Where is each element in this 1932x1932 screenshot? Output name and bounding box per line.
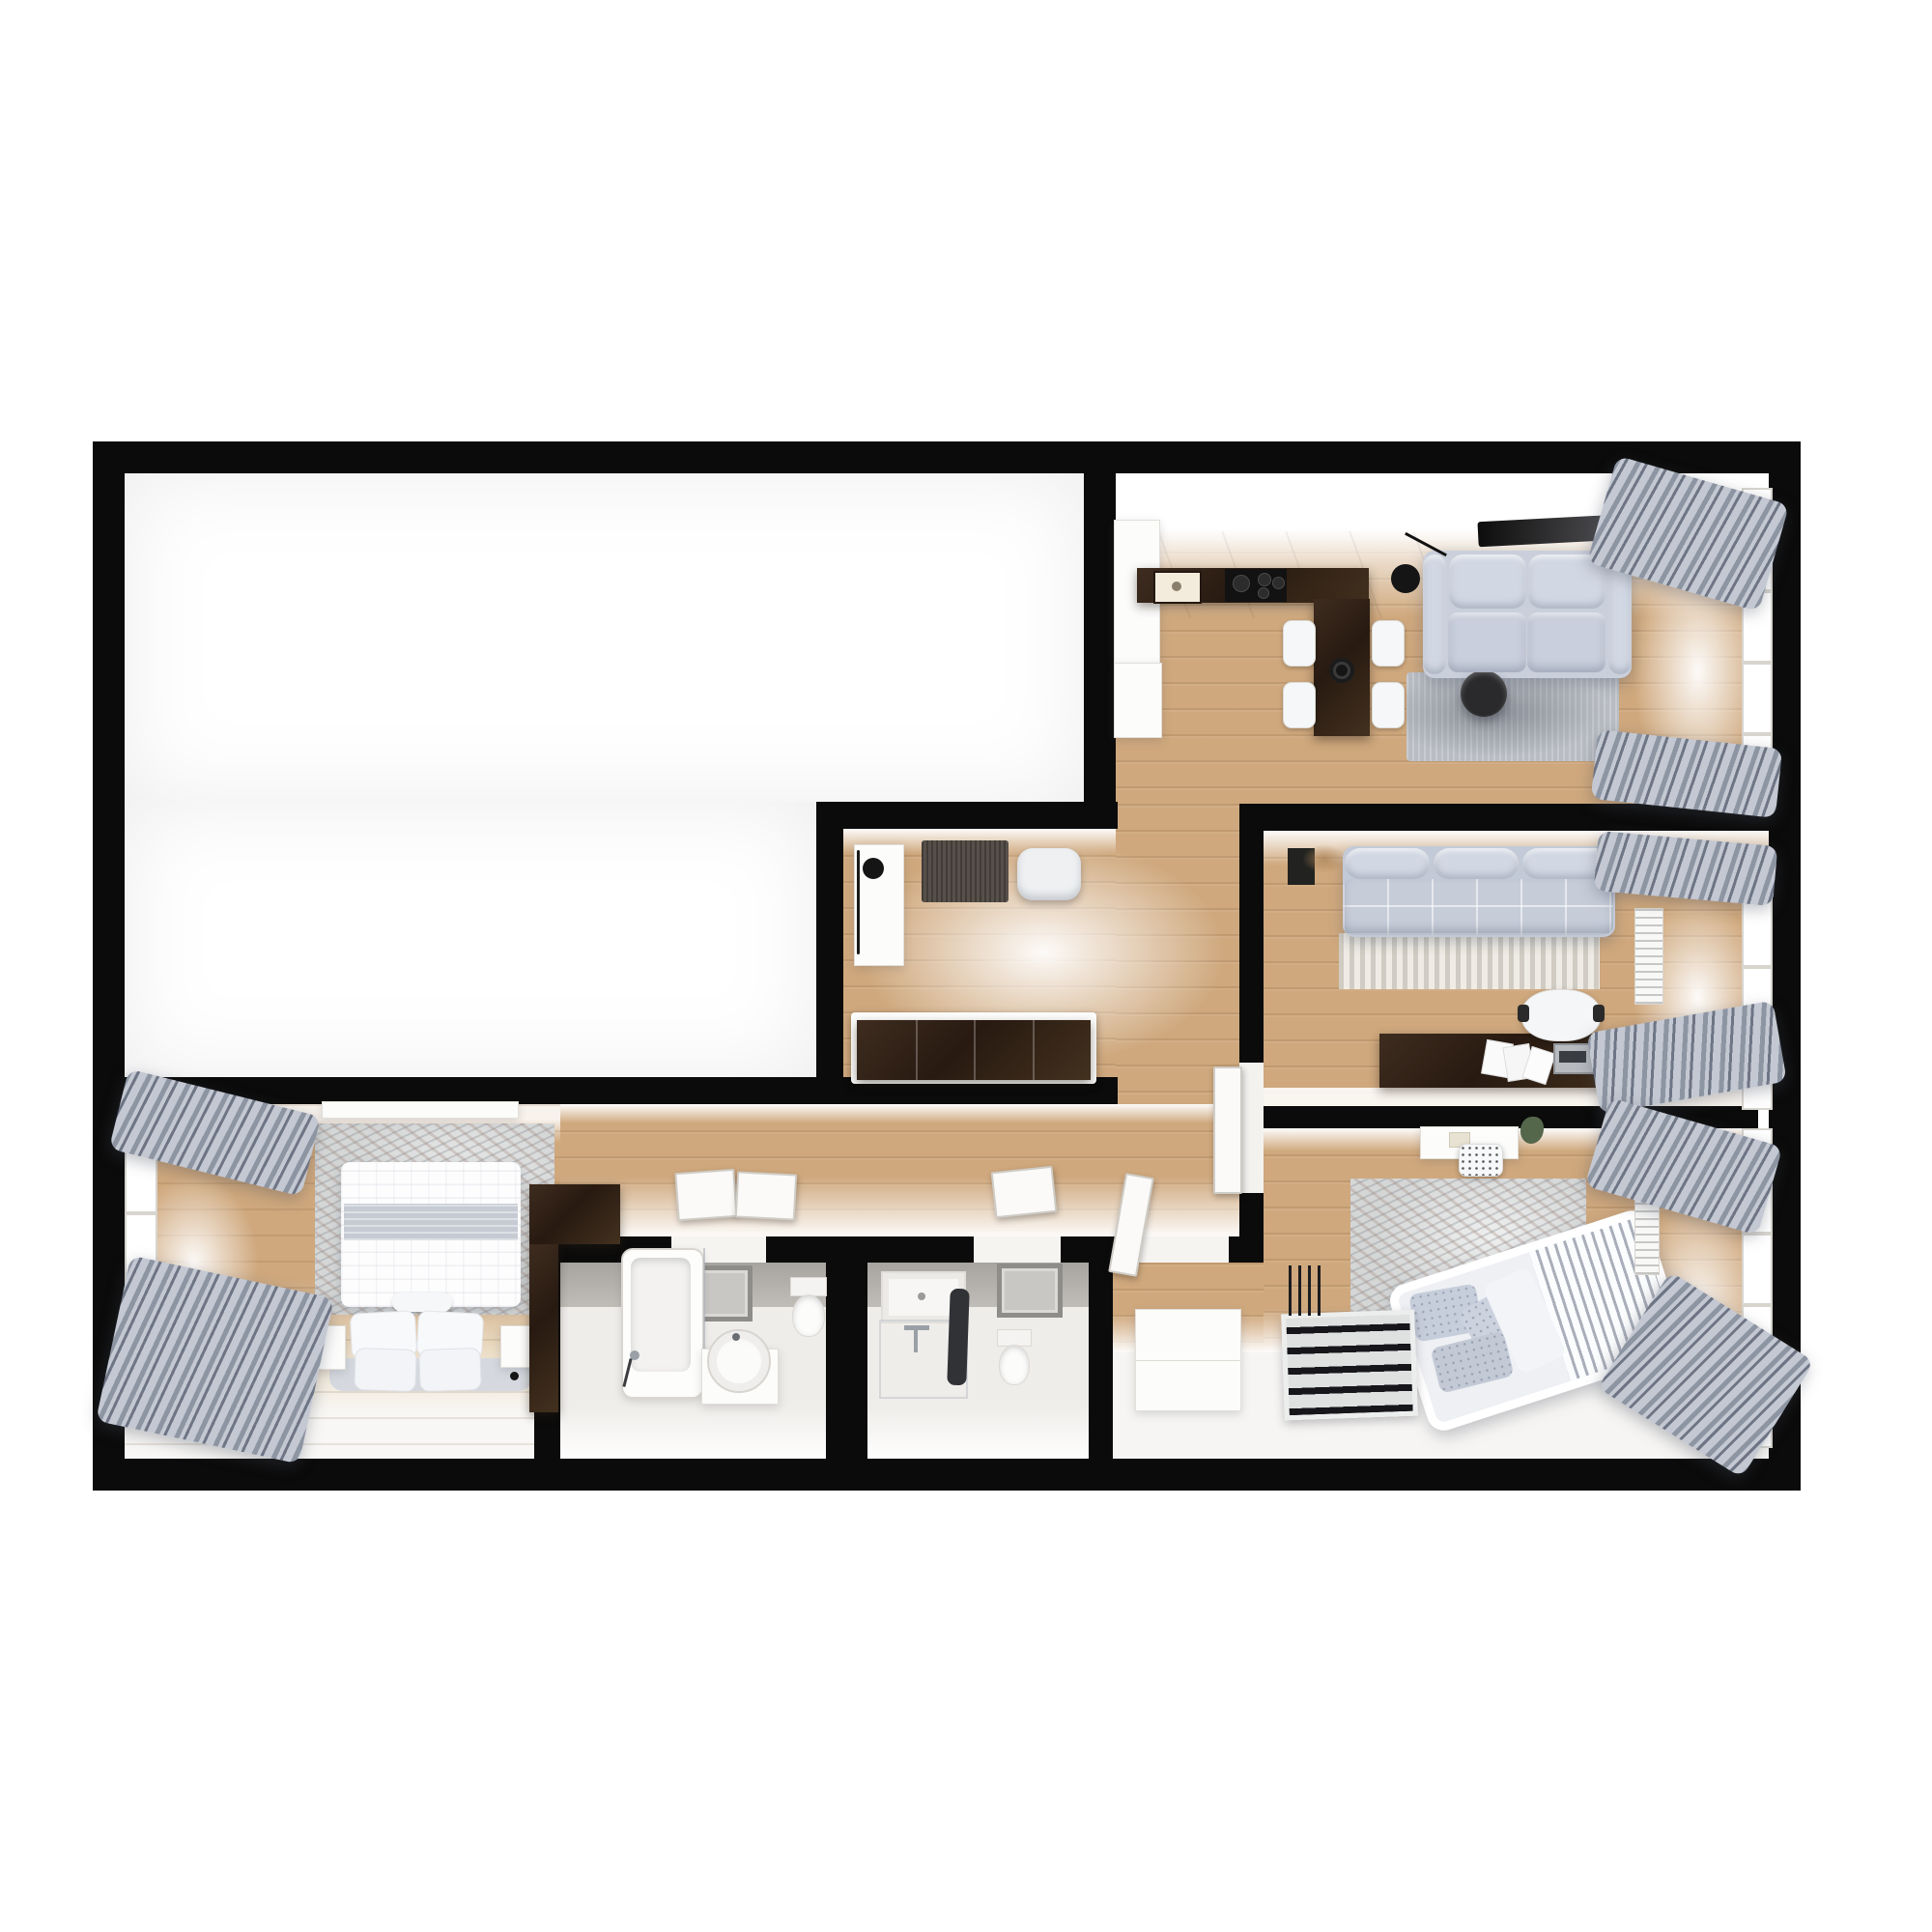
floor-lamp [1391,564,1420,593]
modular-sofa-back-pillow [1345,848,1430,879]
sofa-back-cushion [1449,554,1526,609]
open-door-bedroom [674,1169,737,1221]
coffee-table [1461,670,1507,717]
shower-drain [918,1293,925,1300]
outer-wall-bottom [93,1459,1801,1491]
shower-column [914,1325,918,1352]
bedroom-wardrobe-side [529,1244,558,1412]
sofa-seat-cushion [1527,612,1605,672]
modular-sofa-back-pillow [1434,848,1519,879]
hall-mirror-edge [857,850,860,954]
pillow [418,1348,481,1392]
bathroom2-door-threshold [974,1236,1061,1263]
towel-rail [947,1289,969,1386]
outer-wall-top [93,441,1801,473]
empty-room-floor-lower [125,802,816,1077]
lounge-radiator [1634,908,1663,1005]
open-door-bathroom1 [735,1171,797,1220]
modular-sofa-tufted-seat [1343,879,1613,935]
basin-faucet [732,1333,740,1341]
nursery-door-threshold [1138,1236,1229,1263]
kitchen-sink [1153,571,1202,604]
dining-chair [1283,620,1316,667]
office-chair-armrest [1518,1005,1529,1022]
bathtub [621,1248,704,1399]
toilet-bowl [999,1345,1030,1385]
lower-cabinet [1114,663,1162,738]
pouf [1017,848,1081,900]
kitchen-west-wall [1084,441,1116,828]
nursery-dresser [1135,1309,1241,1411]
dining-chair [1372,682,1405,728]
bedroom-closet-band [322,1101,519,1119]
fruit-bowl [1329,658,1354,683]
wall-lamp [510,1372,519,1380]
bathroom2-east-wall [1089,1236,1113,1491]
bathroom-separator-wall [826,1236,867,1491]
lounge-door-opening [1239,1063,1264,1193]
living-rug [1406,672,1619,761]
toy-ladder [1281,1310,1418,1421]
toy-spindles [1289,1265,1325,1316]
hall-wardrobe [851,1012,1096,1084]
hall-wardrobe-doors [857,1020,1091,1080]
dining-chair [1372,620,1405,667]
empty-room-floor-upper [125,473,1084,802]
bedroom-wardrobe [529,1184,620,1244]
bath-north-wall-d [1229,1236,1264,1263]
cooktop [1225,569,1287,602]
bathtub-basin [631,1258,691,1372]
pillow [354,1348,416,1392]
kids-chair [1459,1144,1503,1177]
crib-pillow [1430,1330,1514,1393]
doormat [922,840,1009,902]
toilet-bowl [792,1294,825,1337]
lounge-open-door [1213,1066,1242,1194]
office-chair-armrest [1593,1005,1605,1022]
bath-north-wall-b [766,1236,974,1263]
lounge-rug [1339,933,1600,989]
sofa-armrest [1423,554,1446,674]
sink-drain [1172,582,1181,591]
hall-left-wall [816,802,843,1104]
dried-plant [1302,844,1347,873]
toilet [790,1277,827,1296]
wall-mirror [997,1264,1063,1318]
bed-blanket-band [344,1204,518,1240]
sofa-seat-cushion [1448,612,1526,672]
floor-plan-render [0,0,1932,1932]
hall-top-wall [816,802,1118,829]
bolster-pillow [392,1293,452,1312]
open-door-bathroom2 [991,1166,1058,1218]
office-chair [1521,989,1601,1041]
outer-wall-right [1769,441,1801,1491]
dining-chair [1283,682,1316,728]
vase [863,858,884,879]
